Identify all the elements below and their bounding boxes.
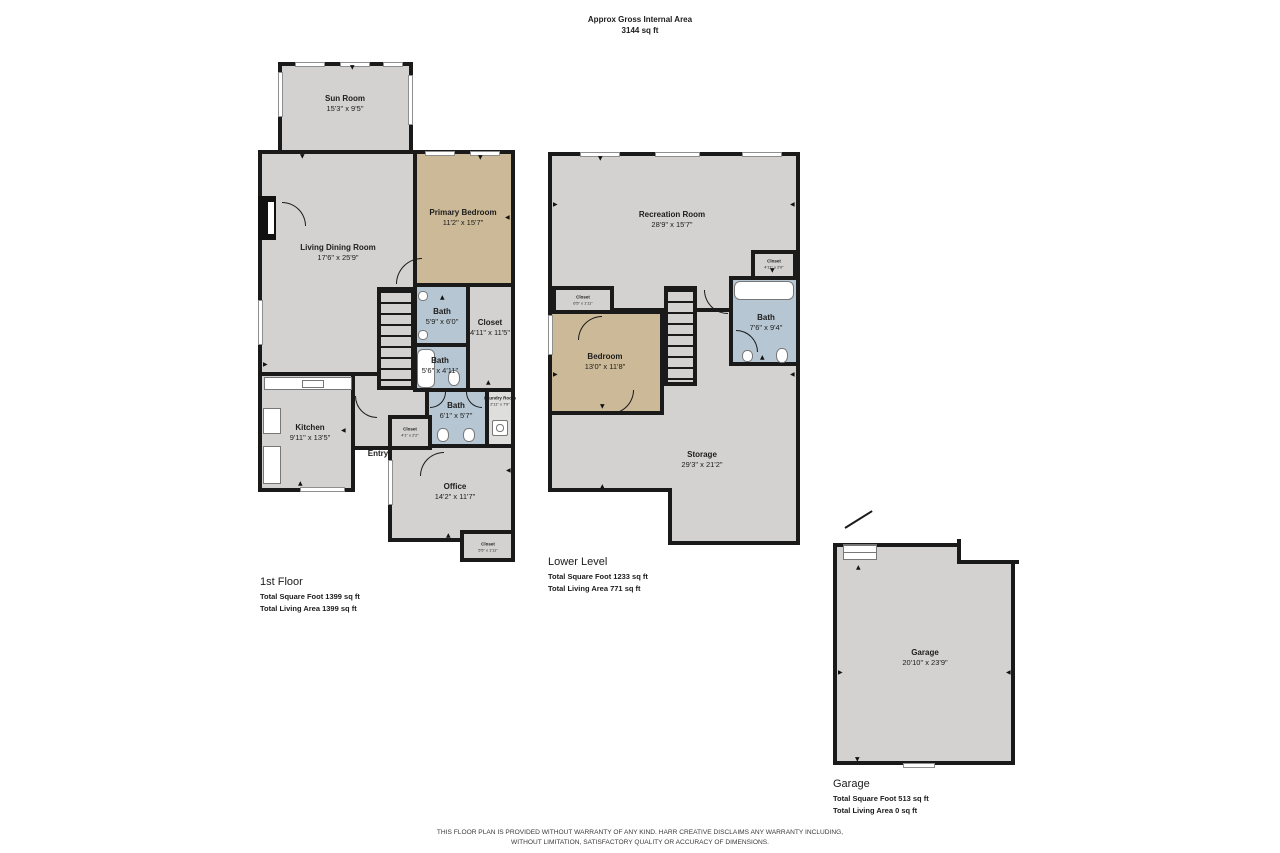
room-dims: 2'11" x 7'9" bbox=[484, 401, 516, 406]
window bbox=[470, 151, 500, 156]
floor-living-area: Total Living Area 771 sq ft bbox=[548, 583, 648, 595]
window bbox=[383, 62, 403, 67]
fridge-icon bbox=[263, 446, 281, 484]
room-dims: 9'11" x 13'5" bbox=[290, 433, 331, 443]
label-closet-left: Closet 6'5" x 1'11" bbox=[573, 294, 592, 305]
toilet-icon bbox=[776, 348, 788, 363]
room-dims: 4'1" x 2'2" bbox=[401, 432, 419, 437]
label-office: Office 14'2" x 11'7" bbox=[435, 482, 476, 502]
window bbox=[408, 75, 413, 125]
direction-marker: ◀ bbox=[1006, 670, 1011, 676]
toilet-icon bbox=[437, 428, 449, 442]
garage-steps bbox=[843, 544, 877, 560]
label-bath-lower: Bath 6'1" x 5'7" bbox=[440, 401, 473, 421]
room-name: Recreation Room bbox=[639, 210, 705, 219]
direction-marker: ▶ bbox=[553, 202, 558, 208]
room-name: Kitchen bbox=[295, 423, 324, 432]
room-name: Primary Bedroom bbox=[429, 208, 496, 217]
floor-sqft: Total Square Foot 1399 sq ft bbox=[260, 591, 360, 603]
label-bedroom-lower: Bedroom 13'0" x 11'8" bbox=[585, 352, 626, 372]
gross-area-value: 3144 sq ft bbox=[588, 25, 692, 36]
disclaimer-line1: THIS FLOOR PLAN IS PROVIDED WITHOUT WARR… bbox=[437, 828, 843, 838]
window bbox=[425, 151, 455, 156]
sink-icon bbox=[418, 330, 428, 340]
label-closet-entry: Closet 4'1" x 2'2" bbox=[401, 426, 419, 437]
label-sun-room: Sun Room 15'3" x 9'5" bbox=[325, 94, 365, 114]
floor-living-area: Total Living Area 1399 sq ft bbox=[260, 603, 360, 615]
window bbox=[655, 152, 700, 157]
room-name: Bath bbox=[433, 307, 451, 316]
direction-marker: ▼ bbox=[600, 404, 605, 410]
direction-marker: ▲ bbox=[600, 484, 605, 490]
direction-marker: ◀ bbox=[505, 215, 510, 221]
room-name: Entry bbox=[368, 449, 388, 458]
room-name: Living Dining Room bbox=[300, 243, 376, 252]
label-bath-lower-level: Bath 7'6" x 9'4" bbox=[750, 313, 783, 333]
direction-marker: ▶ bbox=[838, 670, 843, 676]
direction-marker: ▼ bbox=[598, 156, 603, 162]
floor-title: Garage bbox=[833, 778, 929, 790]
direction-marker: ◀ bbox=[790, 202, 795, 208]
room-dims: 11'2" x 15'7" bbox=[429, 218, 496, 228]
room-name: Closet bbox=[576, 294, 590, 299]
label-garage: Garage 20'10" x 23'9" bbox=[902, 648, 947, 668]
label-closet-office: Closet 5'5" x 1'11" bbox=[478, 541, 497, 552]
room-storage-extension bbox=[668, 488, 800, 545]
room-name: Laundry Room bbox=[484, 395, 516, 400]
window bbox=[295, 62, 325, 67]
room-name: Closet bbox=[767, 258, 781, 263]
disclaimer-line2: WITHOUT LIMITATION, SATISFACTORY QUALITY… bbox=[437, 838, 843, 848]
lower-level-summary: Lower Level Total Square Foot 1233 sq ft… bbox=[548, 556, 648, 595]
room-dims: 14'2" x 11'7" bbox=[435, 492, 476, 502]
sink-icon bbox=[418, 291, 428, 301]
room-dims: 28'9" x 15'7" bbox=[639, 220, 705, 230]
direction-marker: ▲ bbox=[440, 295, 445, 301]
label-laundry: Laundry Room 2'11" x 7'9" bbox=[484, 395, 516, 406]
room-dims: 6'1" x 5'7" bbox=[440, 411, 473, 421]
window bbox=[340, 62, 370, 67]
room-dims: 6'5" x 1'11" bbox=[573, 300, 592, 305]
first-floor-summary: 1st Floor Total Square Foot 1399 sq ft T… bbox=[260, 576, 360, 615]
direction-marker: ◀ bbox=[506, 468, 511, 474]
window bbox=[258, 300, 263, 345]
room-name: Office bbox=[444, 482, 467, 491]
label-closet-top: Closet 4'11" x 2'0" bbox=[764, 258, 783, 269]
floor-plan-canvas: Approx Gross Internal Area 3144 sq ft bbox=[0, 0, 1280, 853]
floor-sqft: Total Square Foot 513 sq ft bbox=[833, 793, 929, 805]
room-dims: 5'9" x 6'0" bbox=[426, 317, 459, 327]
gross-area-title: Approx Gross Internal Area bbox=[588, 14, 692, 25]
garage-door-leaf bbox=[844, 510, 872, 529]
direction-marker: ▶ bbox=[553, 372, 558, 378]
window bbox=[388, 460, 393, 505]
label-living-dining: Living Dining Room 17'6" x 25'9" bbox=[300, 243, 376, 263]
room-dims: 13'0" x 11'8" bbox=[585, 362, 626, 372]
sink-icon bbox=[463, 428, 475, 442]
window bbox=[300, 487, 345, 492]
window bbox=[278, 72, 283, 117]
direction-marker: ▼ bbox=[300, 154, 305, 160]
room-name: Bath bbox=[447, 401, 465, 410]
stairs-first-floor bbox=[377, 287, 415, 390]
label-kitchen: Kitchen 9'11" x 13'5" bbox=[290, 423, 331, 443]
floor-sqft: Total Square Foot 1233 sq ft bbox=[548, 571, 648, 583]
label-entry: Entry bbox=[368, 449, 388, 459]
washer-drum-icon bbox=[496, 424, 504, 432]
room-dims: 5'6" x 4'11" bbox=[422, 366, 458, 376]
room-name: Bedroom bbox=[587, 352, 622, 361]
kitchen-sink-icon bbox=[302, 380, 324, 388]
room-dims: 29'3" x 21'2" bbox=[681, 460, 722, 470]
direction-marker: ▲ bbox=[856, 565, 861, 571]
stairs-lower-level bbox=[664, 286, 697, 386]
label-closet-hall: Closet 4'11" x 11'5" bbox=[470, 318, 510, 338]
room-name: Garage bbox=[911, 648, 939, 657]
room-dims: 4'11" x 2'0" bbox=[764, 264, 783, 269]
window bbox=[903, 763, 935, 768]
floor-title: 1st Floor bbox=[260, 576, 360, 588]
label-bath-upper: Bath 5'9" x 6'0" bbox=[426, 307, 459, 327]
label-storage: Storage 29'3" x 21'2" bbox=[681, 450, 722, 470]
page-title: Approx Gross Internal Area 3144 sq ft bbox=[588, 14, 692, 36]
room-name: Closet bbox=[403, 426, 417, 431]
floor-title: Lower Level bbox=[548, 556, 648, 568]
fireplace-hearth bbox=[268, 202, 274, 234]
room-dims: 20'10" x 23'9" bbox=[902, 658, 947, 668]
room-name: Storage bbox=[687, 450, 717, 459]
garage-summary: Garage Total Square Foot 513 sq ft Total… bbox=[833, 778, 929, 817]
label-primary-bedroom: Primary Bedroom 11'2" x 15'7" bbox=[429, 208, 496, 228]
room-dims: 4'11" x 11'5" bbox=[470, 328, 510, 338]
garage-notch bbox=[957, 539, 1019, 564]
label-recreation: Recreation Room 28'9" x 15'7" bbox=[639, 210, 705, 230]
direction-marker: ▲ bbox=[446, 533, 451, 539]
bathtub-icon bbox=[734, 281, 794, 300]
disclaimer: THIS FLOOR PLAN IS PROVIDED WITHOUT WARR… bbox=[437, 828, 843, 848]
room-name: Closet bbox=[481, 541, 495, 546]
direction-marker: ▲ bbox=[760, 355, 765, 361]
stove-icon bbox=[263, 408, 281, 434]
room-name: Bath bbox=[431, 356, 449, 365]
direction-marker: ◀ bbox=[790, 372, 795, 378]
room-name: Bath bbox=[757, 313, 775, 322]
label-bath-middle: Bath 5'6" x 4'11" bbox=[422, 356, 458, 376]
room-dims: 5'5" x 1'11" bbox=[478, 547, 497, 552]
direction-marker: ◀ bbox=[341, 428, 346, 434]
direction-marker: ▼ bbox=[478, 155, 483, 161]
room-dims: 17'6" x 25'9" bbox=[300, 253, 376, 263]
room-dims: 7'6" x 9'4" bbox=[750, 323, 783, 333]
room-name: Sun Room bbox=[325, 94, 365, 103]
direction-marker: ▼ bbox=[855, 757, 860, 763]
window bbox=[742, 152, 782, 157]
window bbox=[548, 315, 553, 355]
direction-marker: ▼ bbox=[350, 65, 355, 71]
direction-marker: ▶ bbox=[263, 362, 268, 368]
floor-living-area: Total Living Area 0 sq ft bbox=[833, 805, 929, 817]
room-dims: 15'3" x 9'5" bbox=[325, 104, 365, 114]
direction-marker: ▲ bbox=[486, 380, 491, 386]
direction-marker: ▲ bbox=[298, 481, 303, 487]
room-name: Closet bbox=[478, 318, 502, 327]
